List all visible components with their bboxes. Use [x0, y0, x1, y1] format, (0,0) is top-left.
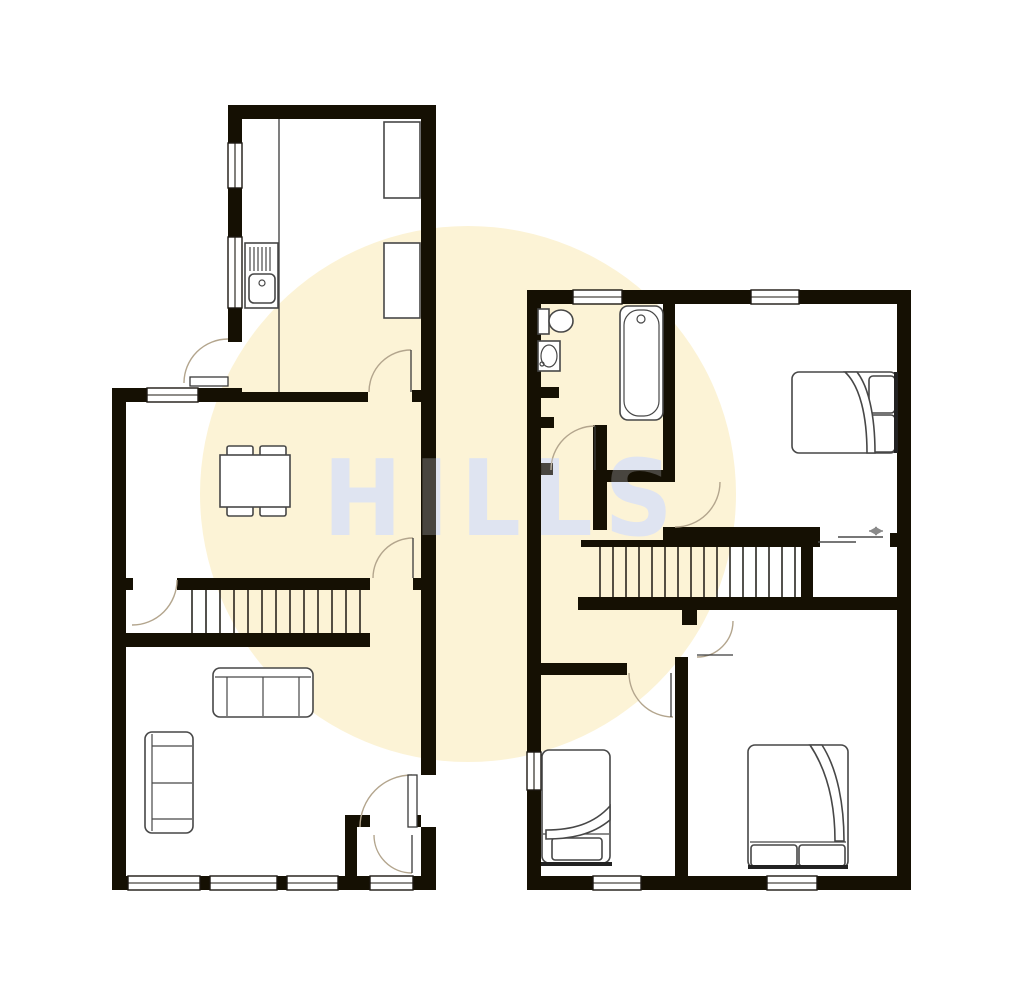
- back-door-leaf: [190, 377, 228, 386]
- toilet-cistern: [538, 309, 549, 334]
- chimney-recess: [541, 387, 559, 398]
- kitchen-unit: [384, 243, 420, 318]
- watermark-overlay: HILLS: [323, 437, 684, 560]
- pillow: [751, 845, 797, 866]
- chimney-recess: [541, 417, 554, 428]
- dining-table: [220, 455, 290, 507]
- floorplan-page: HILLS: [0, 0, 1024, 996]
- door-swing-arc: [697, 621, 733, 657]
- pillow: [869, 376, 895, 413]
- dining-room: [220, 446, 290, 516]
- sliding-door-arrow-icon: [869, 527, 883, 536]
- bedroom-1: [792, 372, 897, 453]
- bedroom-3: [541, 750, 612, 864]
- pillow: [552, 838, 602, 860]
- floorplan-canvas: HILLS: [0, 0, 1024, 996]
- door-swing-arc: [374, 835, 412, 873]
- toilet-bowl: [549, 310, 573, 332]
- pillow: [799, 845, 845, 866]
- bedroom-2: [748, 745, 848, 868]
- door-swing-arc: [132, 580, 177, 625]
- living-room: [145, 668, 313, 833]
- watermark-text-ghost: HILLS: [323, 437, 684, 560]
- sink-bowl: [249, 274, 275, 303]
- kitchen-unit: [384, 122, 420, 198]
- front-door-leaf: [408, 775, 417, 827]
- sliding-door-rails: [818, 537, 883, 542]
